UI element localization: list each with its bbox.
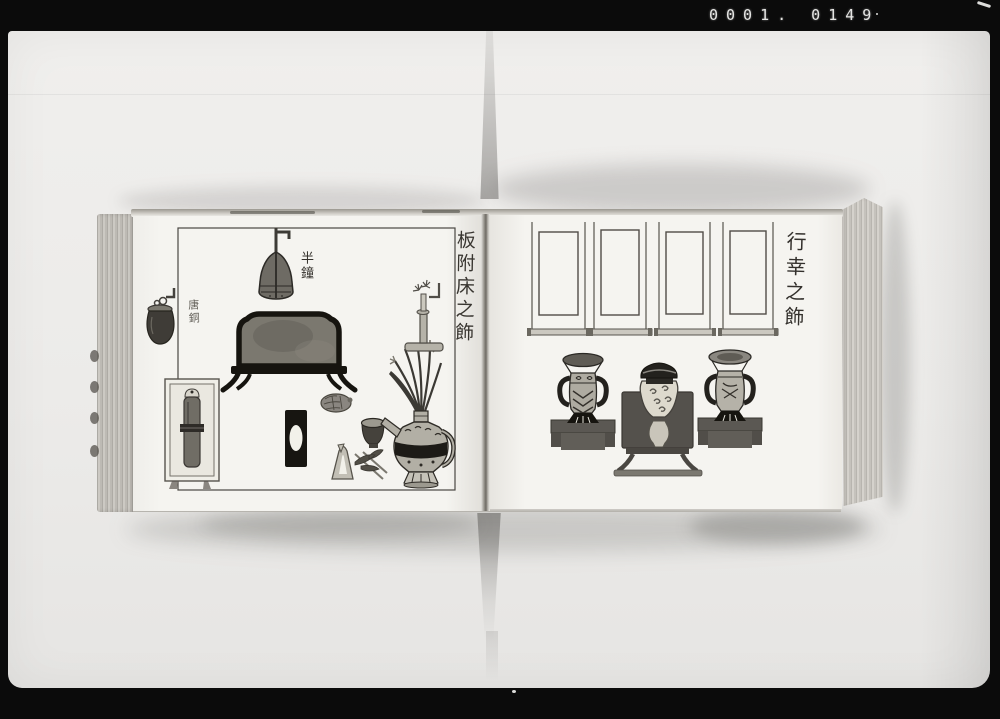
right-page-caption: 行幸之飾 bbox=[779, 231, 811, 332]
book-spread: 半鐘 唐銅 板附床之飾 bbox=[97, 198, 883, 514]
binding-bump bbox=[90, 445, 99, 457]
left-page-caption: 板附床之飾 bbox=[450, 230, 479, 345]
backdrop-sheet: 半鐘 唐銅 板附床之飾 bbox=[8, 31, 990, 688]
book-fore-edge-right bbox=[841, 198, 883, 506]
film-speck bbox=[876, 13, 878, 15]
microfilm-photo: 0001. 0149 bbox=[0, 0, 1000, 719]
binding-bump bbox=[90, 350, 99, 362]
page-edge-mark bbox=[422, 210, 460, 213]
flower-ewer-illustration bbox=[381, 340, 454, 488]
trivet-greens-illustration bbox=[332, 444, 387, 479]
backdrop-fold-tail bbox=[486, 631, 498, 681]
book-page-left: 半鐘 唐銅 板附床之飾 bbox=[133, 216, 481, 511]
film-strip-bottom bbox=[0, 688, 1000, 719]
backdrop-fold-top bbox=[478, 31, 502, 199]
hanging-bell-illustration bbox=[259, 228, 293, 299]
hanging-scroll-illustration bbox=[589, 222, 652, 336]
turtle-illustration bbox=[321, 394, 353, 412]
vase-stand-right-illustration bbox=[698, 350, 762, 448]
book-shadow-right bbox=[880, 201, 910, 513]
binding-bump bbox=[90, 381, 99, 393]
lacquer-table-illustration bbox=[223, 314, 355, 390]
inkstone-illustration bbox=[285, 410, 307, 467]
book-gutter bbox=[481, 214, 490, 511]
jar-label: 唐銅 bbox=[185, 299, 202, 326]
hanging-scroll-illustration bbox=[654, 222, 716, 336]
film-speck bbox=[512, 690, 516, 693]
vase-table-center-illustration bbox=[614, 363, 702, 476]
book-page-right: 行幸之飾 bbox=[490, 215, 842, 509]
book-fore-edge-left bbox=[97, 214, 135, 512]
hanging-scroll-illustration bbox=[718, 222, 778, 336]
bronze-jar-illustration bbox=[147, 288, 174, 344]
film-frame-code: 0001. 0149 bbox=[709, 6, 879, 24]
binding-bump bbox=[90, 412, 99, 424]
backdrop-sheet-seam bbox=[8, 94, 990, 95]
sword-case-illustration bbox=[165, 379, 219, 489]
backdrop-right-shade bbox=[920, 31, 990, 688]
bell-label: 半鐘 bbox=[296, 251, 315, 281]
hanging-scroll-illustration bbox=[527, 222, 590, 336]
candlestick-illustration bbox=[405, 280, 443, 351]
vase-stand-left-illustration bbox=[551, 354, 615, 451]
page-edge-mark bbox=[230, 211, 315, 214]
book-shadow-bottom-left bbox=[200, 510, 480, 538]
